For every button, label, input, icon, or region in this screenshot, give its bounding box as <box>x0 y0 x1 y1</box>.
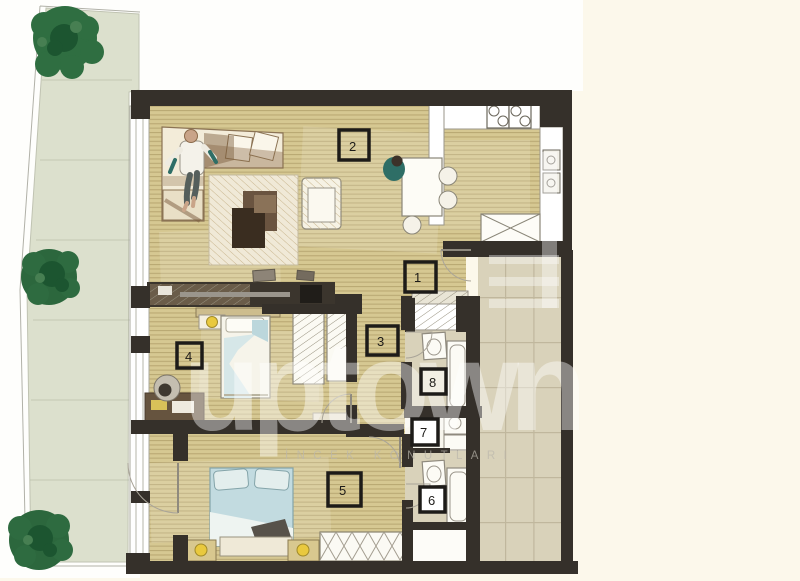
svg-text:1: 1 <box>414 270 421 285</box>
svg-text:8: 8 <box>429 375 436 390</box>
svg-text:5: 5 <box>339 483 346 498</box>
svg-text:3: 3 <box>377 334 384 349</box>
svg-text:6: 6 <box>428 493 435 508</box>
svg-text:2: 2 <box>349 139 356 154</box>
svg-text:İNCEK KONUTLARI: İNCEK KONUTLARI <box>285 449 515 462</box>
svg-text:7: 7 <box>420 425 427 440</box>
svg-text:4: 4 <box>185 349 192 364</box>
